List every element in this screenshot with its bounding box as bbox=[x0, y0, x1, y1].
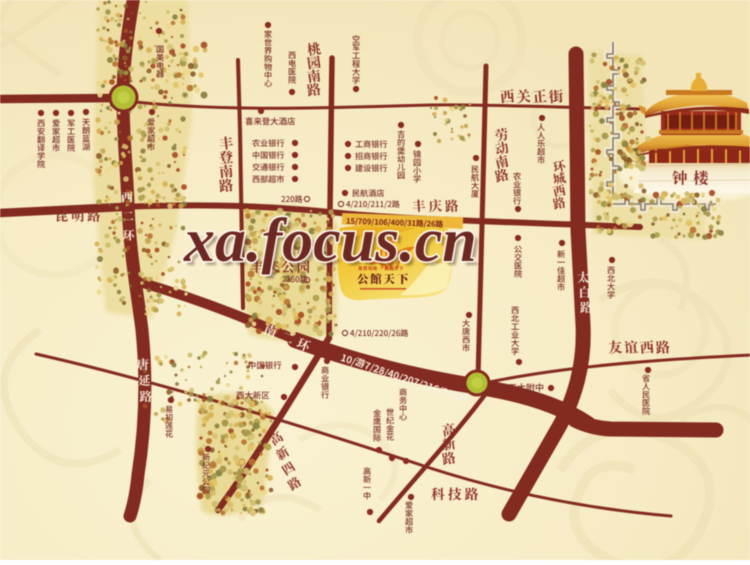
svg-text:xa.focus.cn: xa.focus.cn bbox=[183, 207, 477, 275]
